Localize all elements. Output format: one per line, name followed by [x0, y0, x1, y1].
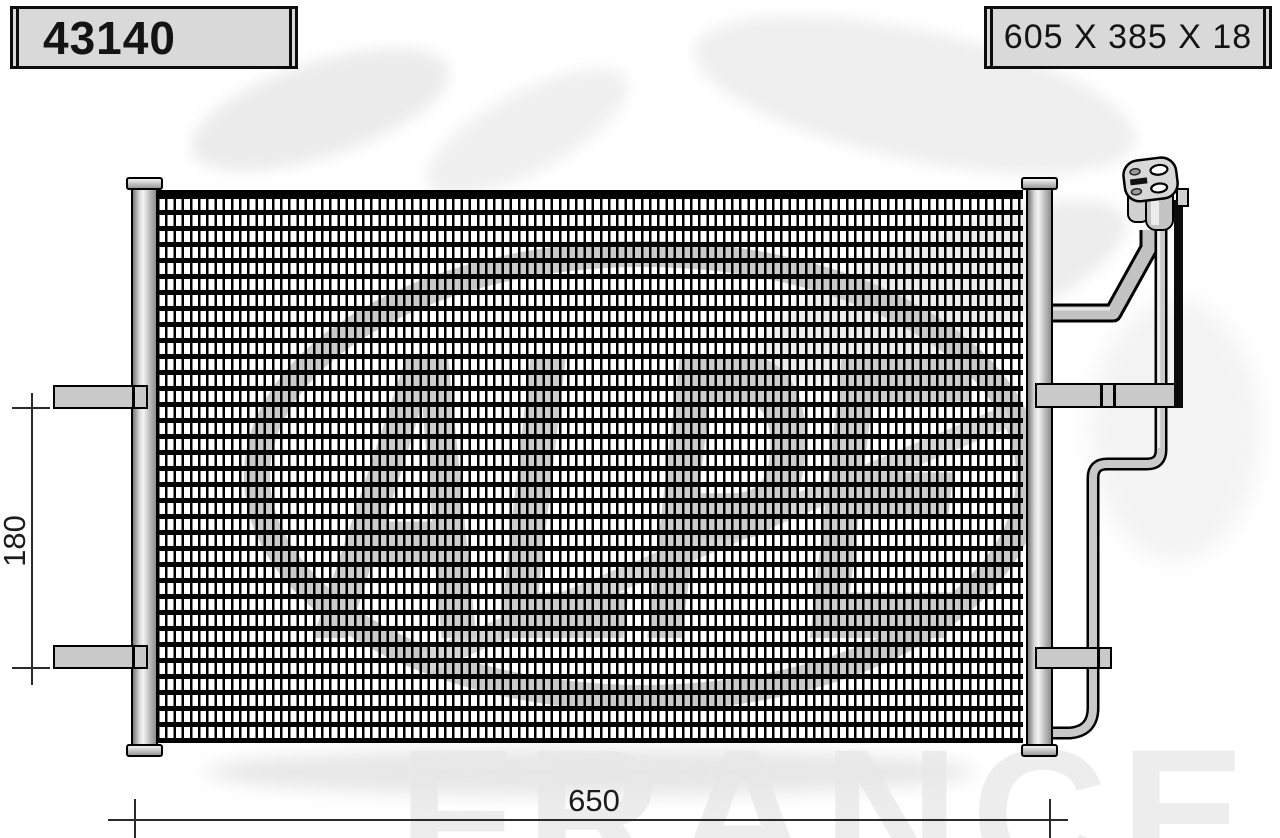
fitting-top-block: [1122, 156, 1180, 203]
outlet-port: [1151, 183, 1168, 194]
width-dimension-tick-left: [134, 799, 136, 838]
height-dimension-tick-top: [12, 407, 50, 409]
width-dimension-line: [108, 819, 1068, 821]
size-text: 605 X 385 X 18: [1004, 18, 1252, 57]
condenser-technical-drawing: FRANCE ALPE: [0, 0, 1280, 838]
fitting-bolt-boss: [1131, 188, 1142, 195]
width-dimension-tick-right: [1049, 799, 1051, 838]
width-dimension-label: 650: [544, 783, 644, 819]
fitting-tab: [1177, 189, 1188, 206]
fitting-bolt-boss: [1130, 168, 1141, 175]
connection-fitting: [0, 0, 1280, 838]
height-dimension-label: 180: [0, 501, 27, 581]
height-dimension-tick-bottom: [12, 667, 50, 669]
part-number-text: 43140: [43, 11, 176, 65]
part-number-plate: 43140: [10, 6, 298, 69]
size-plate: 605 X 385 X 18: [984, 6, 1272, 69]
